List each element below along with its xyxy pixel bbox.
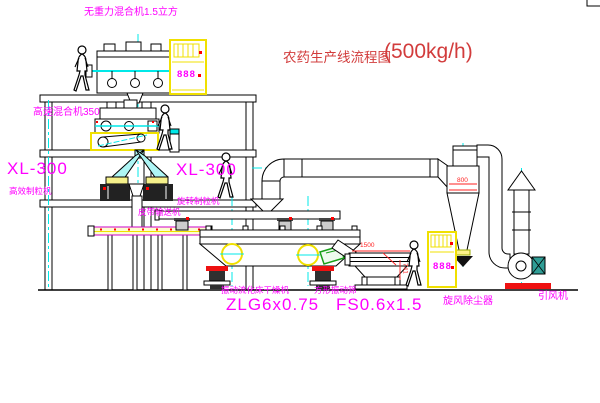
drawing-frame-corner bbox=[587, 0, 600, 6]
cabinet-display-lower: 888 bbox=[433, 262, 452, 272]
cyclone-outlet-pipe bbox=[477, 145, 510, 268]
induced-draft-fan bbox=[505, 253, 551, 289]
exhaust-duct bbox=[262, 159, 438, 199]
control-cabinet-lower bbox=[428, 232, 456, 287]
cabinet-display-upper: 888 bbox=[177, 70, 196, 80]
fluid-bed-dryer bbox=[200, 226, 360, 289]
person-figure bbox=[74, 46, 89, 91]
label-screen-model: FS0.6x1.5 bbox=[336, 296, 423, 313]
diagram-canvas: 无重力混合机1.5立方 农药生产线流程图 (500kg/h) 高速混合机350 … bbox=[0, 0, 600, 403]
diagram-title: 农药生产线流程图 bbox=[283, 51, 391, 65]
granulator-left bbox=[100, 177, 130, 201]
dimension-screen-height: 741 bbox=[401, 263, 408, 274]
label-granulator-right-model: XL-300 bbox=[176, 161, 237, 178]
diagram-title-capacity: (500kg/h) bbox=[384, 41, 473, 62]
label-fan: 引风机 bbox=[538, 292, 568, 302]
exhaust-stack bbox=[508, 171, 535, 254]
label-high-speed-mixer: 高速混合机350 bbox=[33, 108, 100, 118]
dimension-screen-length: 1500 bbox=[360, 243, 374, 250]
dimension-cyclone: 800 bbox=[457, 178, 468, 185]
granulator-right bbox=[143, 177, 173, 201]
label-dryer-model: ZLG6x0.75 bbox=[226, 296, 319, 313]
label-dryer-name: 振动流化床干燥机 bbox=[221, 286, 289, 295]
label-granulator-right-name: 旋转制粒机 bbox=[177, 197, 220, 206]
label-belt-conveyor: 皮带输送机 bbox=[138, 208, 181, 217]
label-granulator-left-name: 高效制粒机 bbox=[9, 187, 52, 196]
label-granulator-left-model: XL-300 bbox=[7, 160, 68, 177]
label-screen-name: 方形振动筛 bbox=[314, 286, 357, 295]
label-gravity-mixer: 无重力混合机1.5立方 bbox=[84, 8, 178, 18]
control-cabinet-upper bbox=[170, 40, 206, 94]
label-cyclone: 旋风除尘器 bbox=[443, 297, 493, 307]
